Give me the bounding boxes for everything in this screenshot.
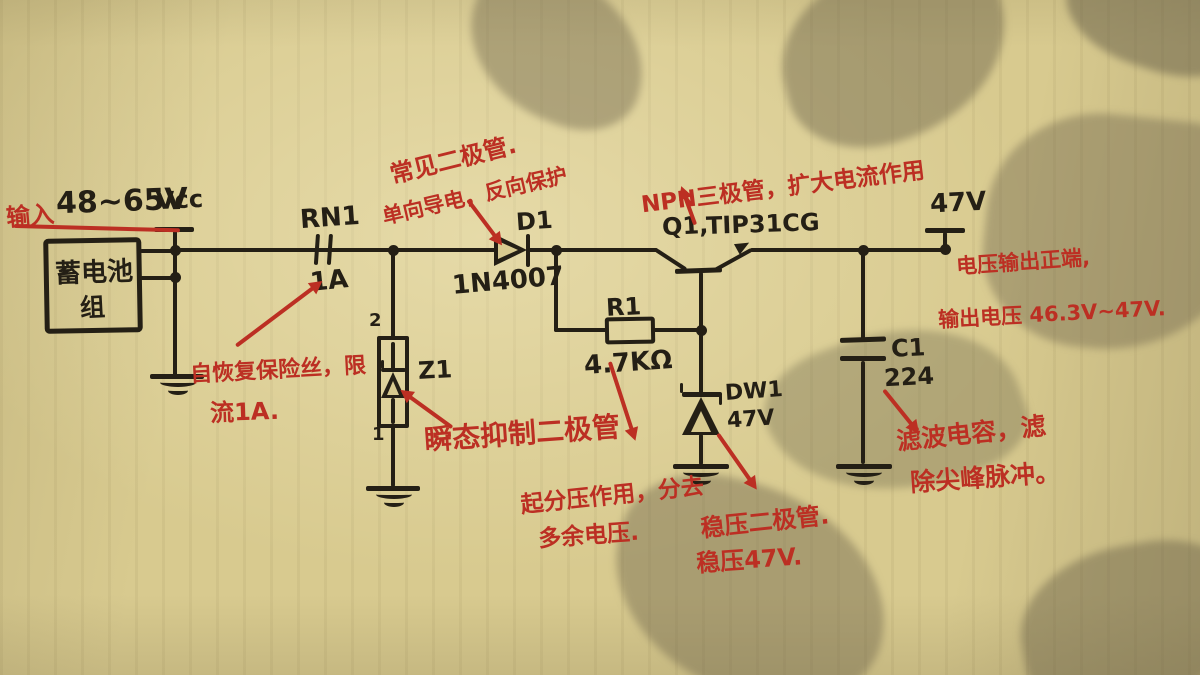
output-voltage-label: 47V <box>929 187 987 220</box>
dw1-note-arrow <box>717 433 753 482</box>
wire <box>391 426 395 487</box>
vcc-label: Vcc <box>155 185 203 215</box>
wire <box>175 248 497 252</box>
junction-dot <box>170 272 181 283</box>
wire <box>391 250 395 338</box>
zener-symbol <box>691 411 711 432</box>
r1-ref-label: R1 <box>605 292 642 322</box>
wire <box>699 434 703 465</box>
z1-pin1-label: 1 <box>372 424 385 445</box>
dw1-value-label: 47V <box>726 405 775 433</box>
ground-symbol <box>384 498 404 507</box>
transistor-emitter <box>714 248 753 272</box>
fuse-note-line1: 自恢复保险丝，限 <box>189 347 366 388</box>
r1-note-line2: 多余电压. <box>537 513 640 554</box>
junction-dot <box>858 245 869 256</box>
r1-value-label: 4.7KΩ <box>583 345 673 381</box>
shadow-patch <box>1052 0 1200 97</box>
tvs-symbol <box>381 360 384 369</box>
tvs-symbol <box>391 398 395 424</box>
fuse-note-arrow <box>235 286 315 347</box>
wire <box>699 332 703 394</box>
zener-cathode-tick <box>680 383 683 393</box>
c1-value-label: 224 <box>883 362 935 393</box>
wire <box>554 328 607 332</box>
fuse-ref-label: RN1 <box>299 201 361 235</box>
q1-part-label: TIP31CG <box>706 208 821 240</box>
junction-dot <box>388 245 399 256</box>
shadow-patch <box>762 0 1028 165</box>
junction-dot <box>940 244 951 255</box>
ground-symbol <box>168 386 188 395</box>
battery-label-line1: 蓄电池 <box>54 251 133 291</box>
junction-dot <box>551 245 562 256</box>
fuse-note-line2: 流1A. <box>209 391 279 428</box>
wire <box>861 361 865 464</box>
dw1-ref-label: DW1 <box>724 377 783 406</box>
handdrawn-circuit-photo: 输入 48~65V Vcc 蓄电池 组 RN1 1A 自恢复保险丝，限 流1A.… <box>0 0 1200 675</box>
input-underline <box>14 224 180 232</box>
z1-ref-label: Z1 <box>417 355 453 385</box>
tvs-symbol <box>391 342 395 370</box>
z1-pin2-label: 2 <box>369 310 382 331</box>
c1-ref-label: C1 <box>890 333 926 363</box>
wire <box>750 248 947 252</box>
battery-label-line2: 组 <box>79 287 106 324</box>
diode-cathode-bar <box>526 234 530 267</box>
shadow-patch <box>1008 526 1200 675</box>
output-terminal-bar <box>925 228 965 233</box>
d1-part-label: 1N4007 <box>451 261 565 301</box>
shadow-patch <box>446 0 669 147</box>
ground-symbol <box>854 476 874 485</box>
d1-ref-label: D1 <box>515 206 553 236</box>
dw1-note-line2: 稳压47V. <box>695 536 803 578</box>
wire <box>861 250 865 340</box>
wire <box>528 248 658 252</box>
z1-note: 瞬态抑制二极管 <box>423 405 621 459</box>
